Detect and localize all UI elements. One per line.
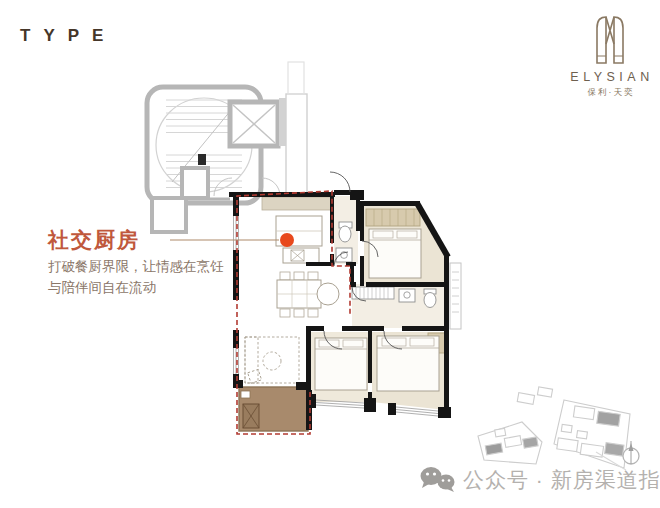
callout-title: 社交厨房 — [48, 226, 140, 254]
watermark: 公众号 · 新房渠道指南 — [420, 466, 660, 494]
kitchen-marker-dot — [280, 233, 294, 247]
wechat-icon — [420, 466, 458, 494]
slide: TYPE ELYSIAN 保利·天奕 社交厨房 打破餐厨界限，让情感在烹饪与陪伴… — [0, 0, 660, 508]
site-key-plan — [478, 387, 630, 470]
brand-logo: ELYSIAN 保利·天奕 — [566, 14, 654, 99]
callout-description: 打破餐厨界限，让情感在烹饪与陪伴间自在流动 — [48, 257, 258, 299]
living-room — [245, 337, 299, 383]
brand-name-en: ELYSIAN — [566, 70, 654, 84]
elevator — [230, 102, 278, 146]
watermark-text: 公众号 · 新房渠道指南 — [463, 466, 660, 494]
bedroom-2 — [315, 338, 367, 390]
elysian-emblem-icon — [590, 14, 630, 66]
type-heading: TYPE — [20, 26, 116, 46]
callout-desc-line2: 与陪伴间自在流动 — [48, 280, 156, 295]
brand-name-cn: 保利·天奕 — [566, 87, 654, 99]
kitchen — [262, 197, 332, 263]
balcony — [239, 387, 308, 431]
callout-desc-line1: 打破餐厨界限，让情感在烹饪 — [48, 259, 224, 274]
master-bedroom — [366, 209, 421, 278]
floor-plan-drawing — [0, 0, 660, 508]
dining — [277, 272, 339, 317]
